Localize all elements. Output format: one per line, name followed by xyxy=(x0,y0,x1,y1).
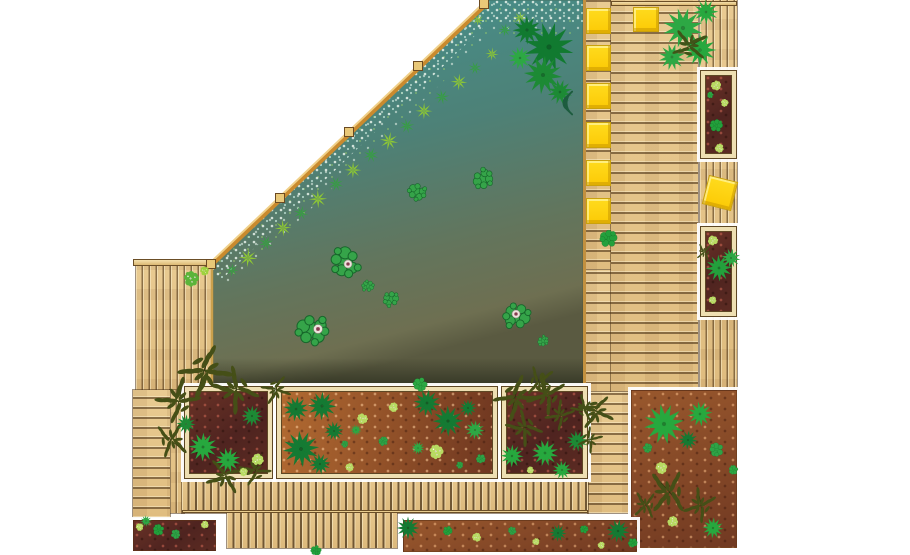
garden-plan-canvas xyxy=(0,0,910,555)
seat-cushion xyxy=(633,7,659,32)
seat-cushion xyxy=(586,8,611,34)
seat-cushion xyxy=(586,160,611,186)
seat-cushion xyxy=(586,45,611,71)
seat-cushion xyxy=(586,83,611,109)
seat-cushion xyxy=(586,122,611,148)
seat-cushion xyxy=(702,175,738,211)
cushion-layer xyxy=(0,0,910,555)
seat-cushion xyxy=(586,198,611,224)
